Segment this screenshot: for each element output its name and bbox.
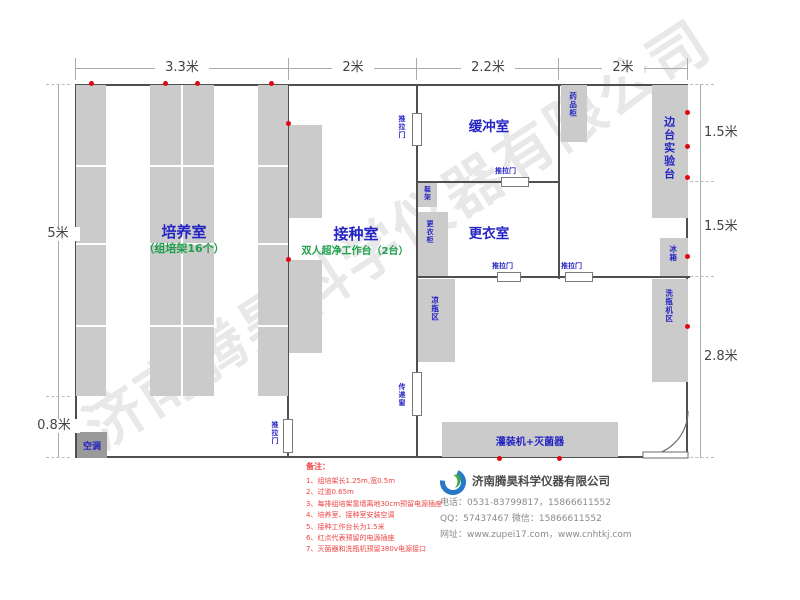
power-outlet-dot bbox=[163, 81, 168, 86]
company-name: 济南腾昊科学仪器有限公司 bbox=[472, 473, 610, 489]
pass-through-window bbox=[412, 372, 422, 416]
sliding-door bbox=[412, 113, 422, 146]
dim-top-1: 3.3米 bbox=[155, 61, 209, 75]
sliding-door-label: 推拉门 bbox=[271, 421, 279, 445]
bottle-cooling-label: 凉瓶区 bbox=[430, 296, 439, 322]
power-outlet-dot bbox=[557, 456, 562, 461]
power-outlet-dot bbox=[685, 324, 690, 329]
clean-bench bbox=[289, 125, 322, 218]
clean-bench bbox=[289, 260, 322, 353]
wardrobe-label: 更衣柜 bbox=[426, 220, 434, 244]
power-outlet-dot bbox=[497, 456, 502, 461]
dim-top-2: 2米 bbox=[332, 61, 374, 75]
company-qq-wechat: QQ：57437467 微信：15866611552 bbox=[440, 511, 602, 524]
dim-right-1: 1.5米 bbox=[704, 126, 748, 140]
dimension-line-right bbox=[700, 84, 701, 458]
note-item: 2、过道0.65m bbox=[306, 487, 456, 498]
notes-title: 备注： bbox=[306, 461, 456, 472]
power-outlet-dot bbox=[269, 81, 274, 86]
room-label-buffer: 缓冲室 bbox=[434, 115, 544, 135]
power-outlet-dot bbox=[286, 121, 291, 126]
sliding-door bbox=[497, 272, 521, 282]
power-outlet-dot bbox=[195, 81, 200, 86]
sliding-door-label: 推拉门 bbox=[561, 261, 601, 271]
company-phone: 电话：0531-83799817，15866611552 bbox=[440, 495, 611, 508]
tissue-culture-rack-column bbox=[258, 85, 288, 396]
power-outlet-dot bbox=[685, 254, 690, 259]
dim-right-3: 2.8米 bbox=[704, 350, 748, 364]
room-note-cultivation: （组培架16个） bbox=[114, 240, 254, 256]
dim-top-4: 2米 bbox=[602, 61, 644, 75]
medicine-cabinet-label: 药品柜 bbox=[568, 92, 577, 118]
pass-window-label: 传递窗 bbox=[398, 383, 406, 407]
sliding-door-label: 推拉门 bbox=[495, 166, 535, 176]
power-outlet-dot bbox=[286, 257, 291, 262]
power-outlet-dot bbox=[685, 175, 690, 180]
sliding-door bbox=[565, 272, 593, 282]
power-outlet-dot bbox=[89, 81, 94, 86]
note-item: 7、灭菌器和洗瓶机预留380v电源接口 bbox=[306, 544, 456, 555]
note-item: 6、红点代表预留的电源插座 bbox=[306, 533, 456, 544]
sliding-door-label: 推拉门 bbox=[398, 115, 406, 139]
room-label-changing: 更衣室 bbox=[434, 222, 544, 242]
dim-left-2: 0.8米 bbox=[28, 419, 80, 433]
company-logo-icon bbox=[438, 467, 468, 497]
fridge-label: 冰箱 bbox=[668, 245, 677, 262]
side-bench-label: 边台实验台 bbox=[662, 116, 675, 181]
note-item: 4、培养室、接种室安装空调 bbox=[306, 510, 456, 521]
power-outlet-dot bbox=[685, 144, 690, 149]
wall-buffer-changing bbox=[416, 181, 560, 183]
dim-left-1: 5米 bbox=[36, 227, 80, 241]
bottle-washer-label: 洗瓶机区 bbox=[664, 289, 673, 323]
company-website: 网址：www.zupei17.com，www.cnhtkj.com bbox=[440, 527, 632, 540]
note-item: 1、组培架长1.25m,宽0.5m bbox=[306, 476, 456, 487]
notes-block: 备注： 1、组培架长1.25m,宽0.5m 2、过道0.65m 3、每排组培架靠… bbox=[306, 461, 456, 556]
filling-sterilizer-label: 灌装机+灭菌器 bbox=[442, 433, 618, 448]
floor-plan: 济南腾昊科学仪器有限公司 培养室 （组培架16个） 接种室 双人超净工作台（ bbox=[0, 0, 800, 600]
room-note-inoculation: 双人超净工作台（2台） bbox=[288, 242, 422, 257]
sliding-door-label: 推拉门 bbox=[492, 261, 532, 271]
sliding-door bbox=[501, 177, 529, 187]
note-item: 5、接种工作台长为1.5米 bbox=[306, 522, 456, 533]
note-item: 3、每排组培架靠墙离地30cm预留电源插座 bbox=[306, 499, 456, 510]
room-label-inoculation: 接种室 bbox=[301, 223, 411, 244]
wall-changing-bottom bbox=[416, 276, 690, 278]
sliding-door bbox=[283, 419, 293, 453]
air-conditioner-label: 空调 bbox=[77, 439, 107, 452]
entry-door bbox=[640, 408, 692, 460]
dim-right-2: 1.5米 bbox=[704, 220, 748, 234]
room-label-cultivation: 培养室 bbox=[129, 221, 239, 242]
dimension-line-left bbox=[58, 84, 59, 458]
power-outlet-dot bbox=[685, 110, 690, 115]
shoe-rack-label: 鞋架 bbox=[422, 186, 429, 201]
dim-top-3: 2.2米 bbox=[461, 61, 515, 75]
tissue-culture-rack-column bbox=[76, 85, 106, 396]
